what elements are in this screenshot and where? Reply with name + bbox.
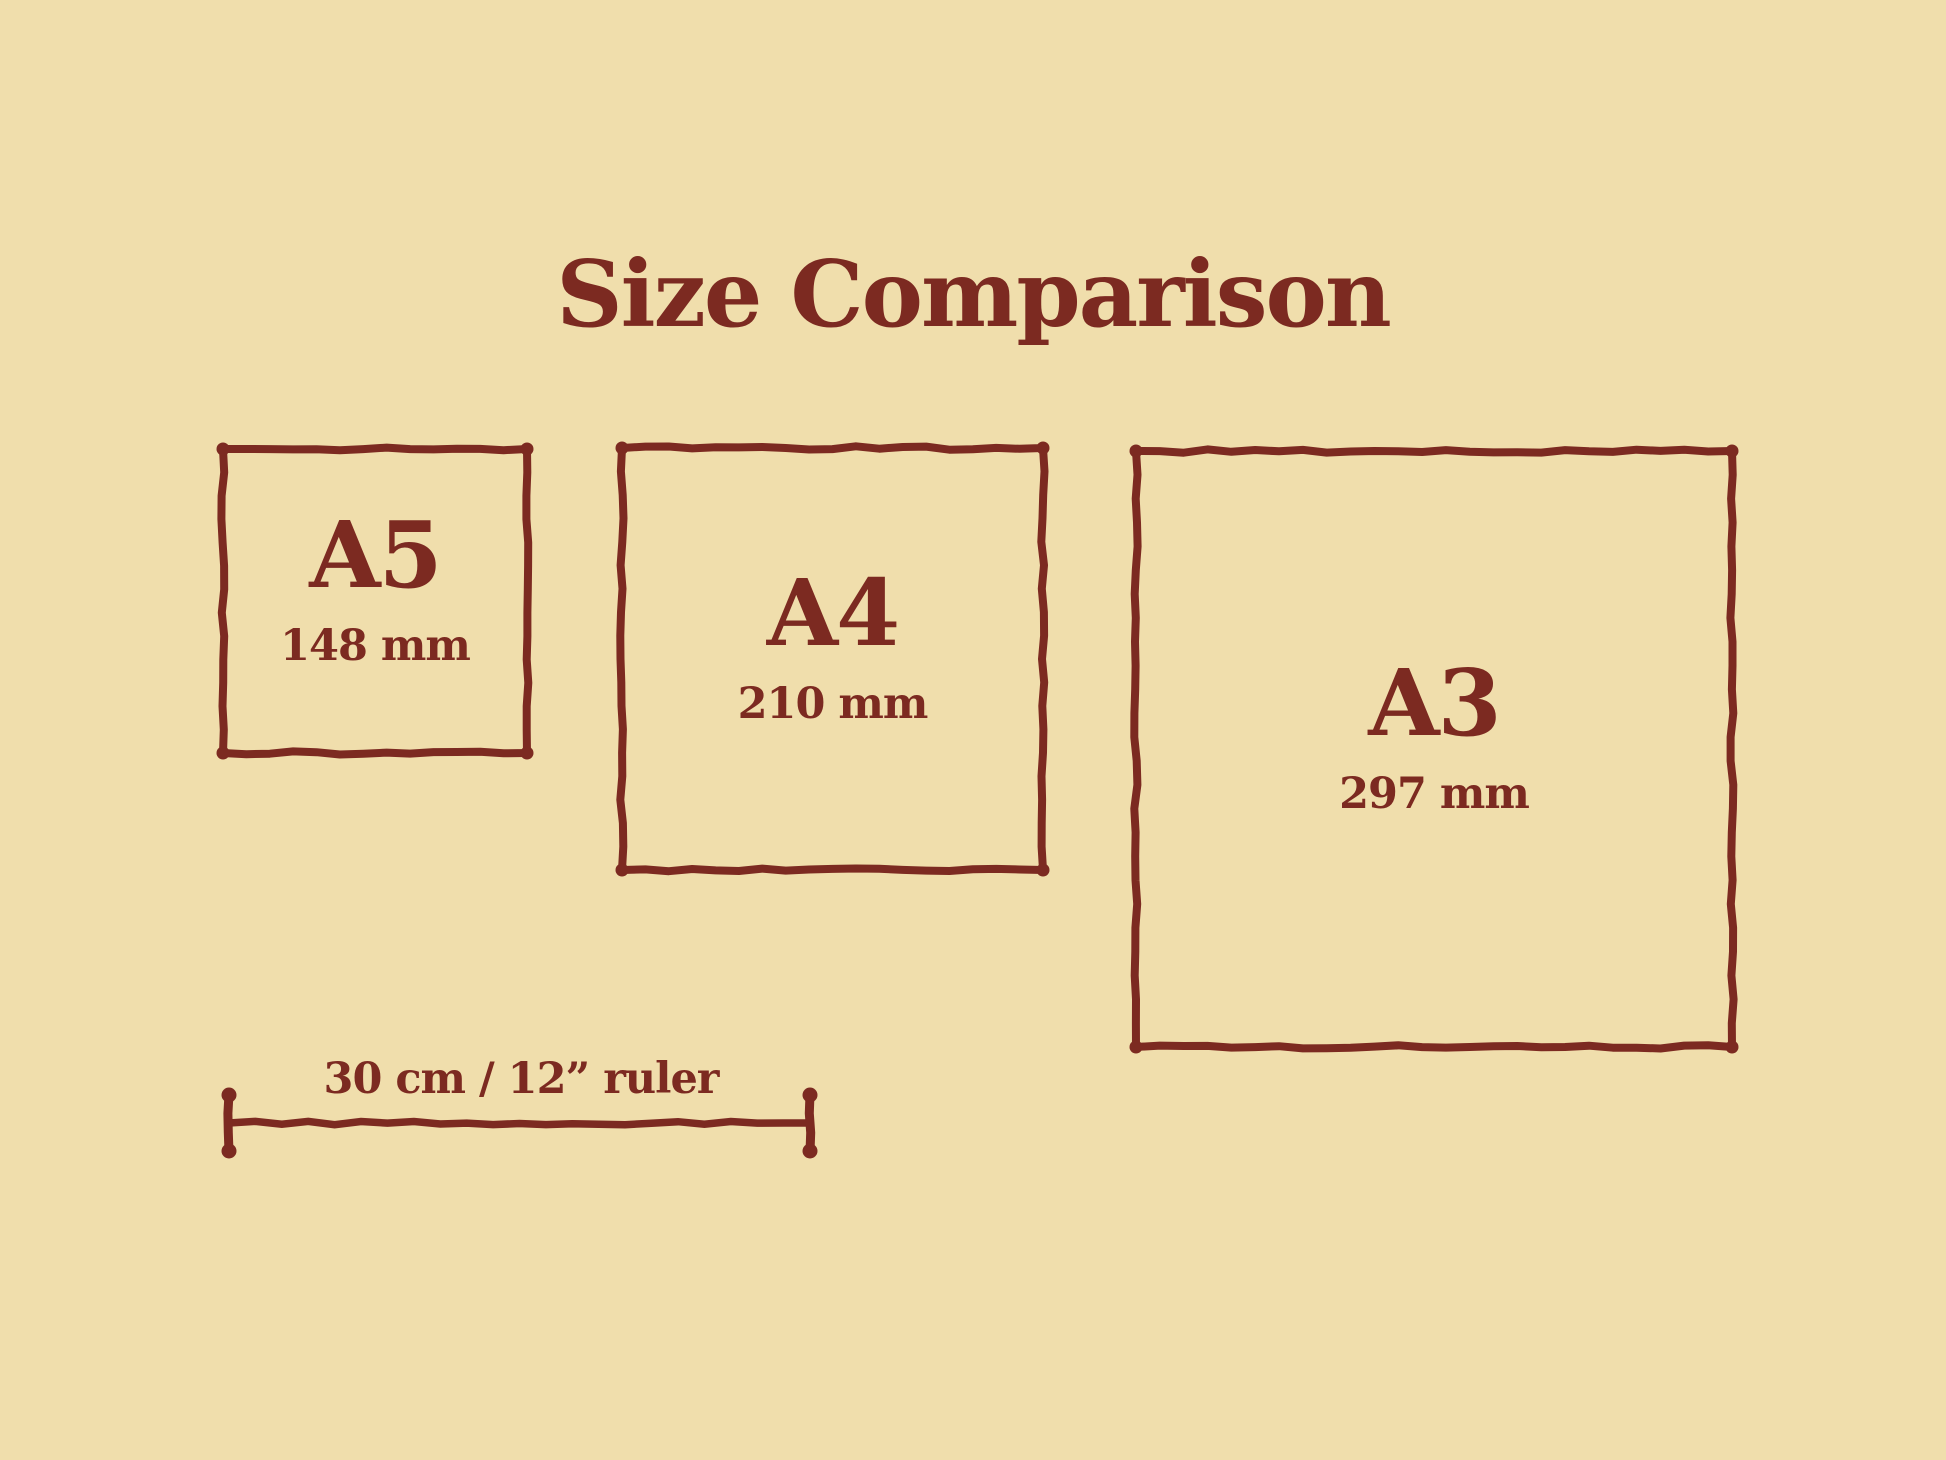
a5-label: A5 <box>309 509 440 601</box>
ruler-sketch <box>205 1078 835 1173</box>
a4-label: A4 <box>767 567 898 659</box>
size-comparison-diagram: Size Comparison A5 148 mm A4 210 mm A3 2… <box>0 0 1946 1460</box>
paper-a5: A5 148 mm <box>213 439 537 763</box>
a3-size-label: 297 mm <box>1339 773 1529 816</box>
a4-text-group: A4 210 mm <box>738 567 928 751</box>
a4-size-label: 210 mm <box>738 683 928 726</box>
paper-a3: A3 297 mm <box>1126 441 1742 1057</box>
a3-label: A3 <box>1368 657 1499 749</box>
page-title: Size Comparison <box>0 248 1946 340</box>
paper-a4: A4 210 mm <box>612 438 1053 880</box>
a5-text-group: A5 148 mm <box>280 509 470 693</box>
a5-size-label: 148 mm <box>280 625 470 668</box>
a3-text-group: A3 297 mm <box>1339 657 1529 841</box>
